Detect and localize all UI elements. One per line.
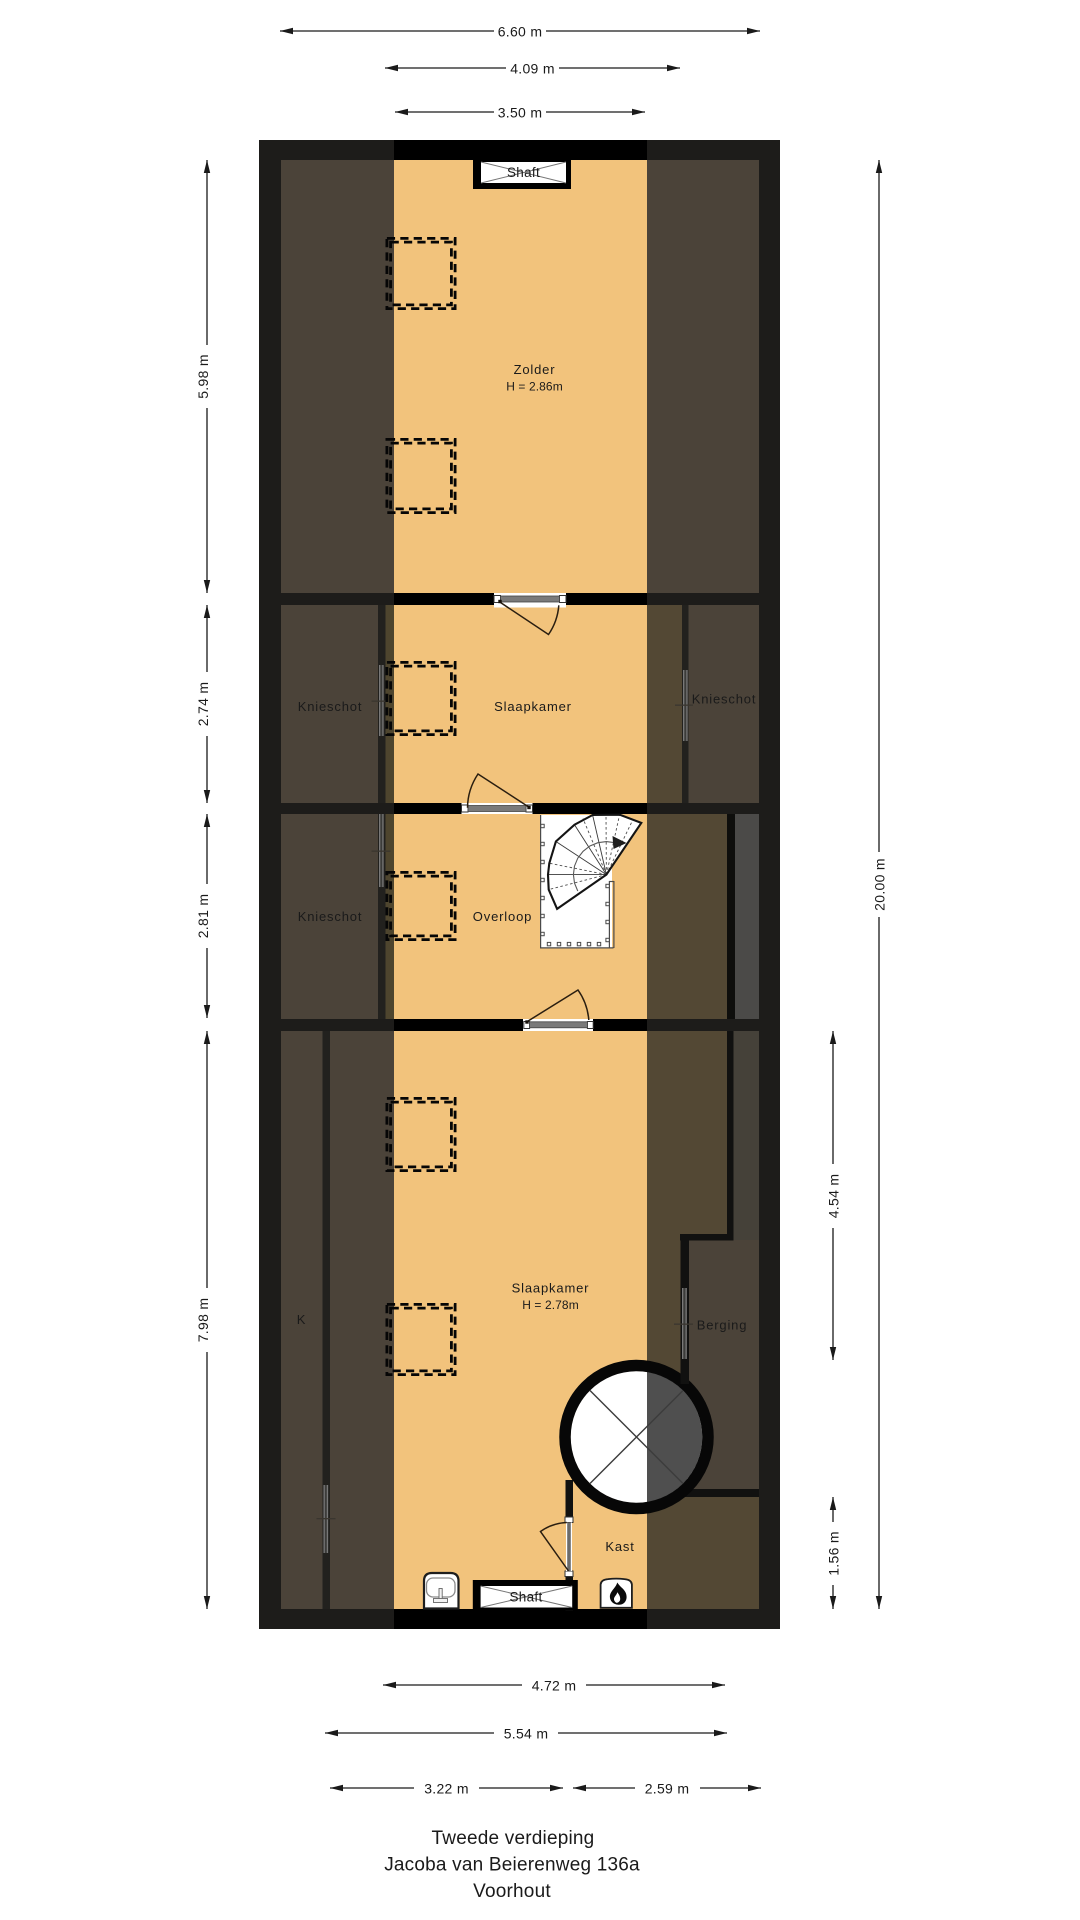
svg-text:4.72 m: 4.72 m [532,1677,577,1693]
svg-text:3.22 m: 3.22 m [424,1780,469,1796]
svg-text:2.59 m: 2.59 m [645,1780,690,1796]
svg-text:Knieschot: Knieschot [692,692,757,707]
svg-text:Berging: Berging [697,1318,748,1333]
svg-text:Shaft: Shaft [509,1590,542,1605]
svg-text:1.56 m: 1.56 m [826,1531,842,1576]
svg-text:K: K [297,1312,307,1327]
svg-text:6.60 m: 6.60 m [498,23,543,39]
svg-text:Shaft: Shaft [507,165,540,180]
svg-text:Jacoba van Beierenweg 136a: Jacoba van Beierenweg 136a [384,1855,640,1876]
svg-text:7.98 m: 7.98 m [195,1298,211,1343]
svg-text:2.81 m: 2.81 m [195,894,211,939]
svg-text:H = 2.78m: H = 2.78m [522,1298,579,1312]
svg-text:Slaapkamer: Slaapkamer [494,699,572,714]
svg-text:H = 2.86m: H = 2.86m [506,380,563,394]
svg-text:5.54 m: 5.54 m [504,1725,549,1741]
svg-text:5.98 m: 5.98 m [195,354,211,399]
svg-text:Slaapkamer: Slaapkamer [512,1281,590,1296]
svg-text:20.00 m: 20.00 m [872,858,888,911]
svg-text:4.09 m: 4.09 m [510,60,555,76]
svg-text:Tweede verdieping: Tweede verdieping [432,1828,595,1849]
svg-text:4.54 m: 4.54 m [826,1174,842,1219]
svg-text:Voorhout: Voorhout [473,1881,551,1902]
svg-text:Knieschot: Knieschot [298,909,363,924]
svg-text:Overloop: Overloop [473,909,532,924]
svg-text:Knieschot: Knieschot [298,699,363,714]
svg-text:Zolder: Zolder [514,362,556,377]
svg-text:2.74 m: 2.74 m [195,682,211,727]
svg-text:3.50 m: 3.50 m [498,104,543,120]
svg-text:Kast: Kast [605,1539,634,1554]
